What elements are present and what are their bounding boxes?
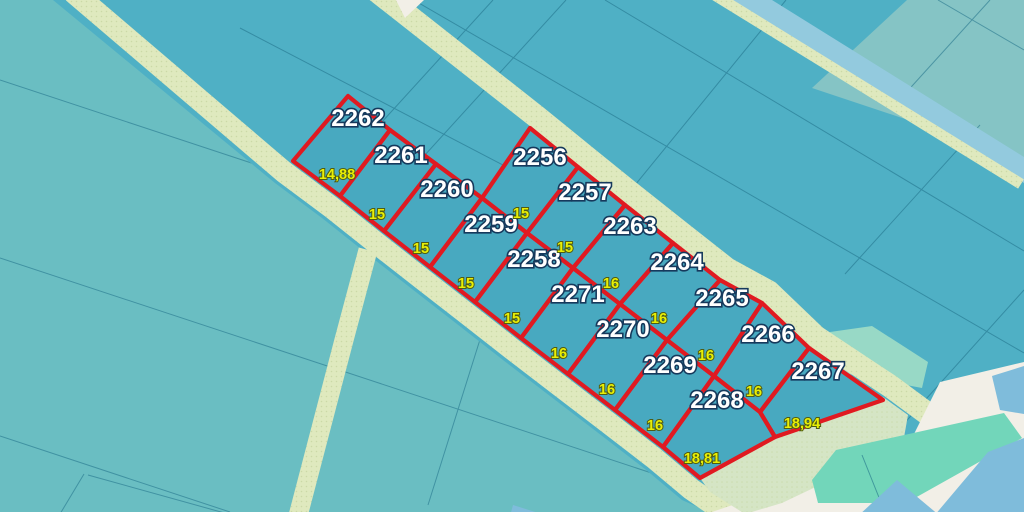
parcel-number-2261: 2261 [374,142,427,169]
frontage-measurement-2258: 15 [504,311,520,327]
frontage-measurement-2269: 16 [647,418,663,434]
frontage-measurement-2263: 16 [603,276,619,292]
frontage-measurement-2259: 15 [458,276,474,292]
frontage-measurement-2257: 15 [557,240,573,256]
parcel-number-2262: 2262 [331,105,384,132]
parcel-number-2264: 2264 [650,249,704,276]
parcel-number-2265: 2265 [695,285,748,312]
parcel-number-2257: 2257 [558,179,611,206]
parcel-number-2256: 2256 [513,144,566,171]
cadastral-map-svg: 226214,882261152260152259152258152271162… [0,0,1024,512]
frontage-measurement-2261: 15 [369,207,385,223]
frontage-measurement-2267: 18,94 [784,416,820,432]
frontage-measurement-2264: 16 [651,311,667,327]
parcel-number-2259: 2259 [464,211,517,238]
map-viewport[interactable]: 226214,882261152260152259152258152271162… [0,0,1024,512]
frontage-measurement-2268: 18,81 [684,451,720,467]
frontage-measurement-2262: 14,88 [319,167,355,183]
parcel-number-2258: 2258 [507,246,560,273]
parcel-number-2268: 2268 [690,387,743,414]
frontage-measurement-2256: 15 [513,206,529,222]
parcel-number-2263: 2263 [603,213,656,240]
frontage-measurement-2265: 16 [698,348,714,364]
parcel-number-2271: 2271 [551,281,604,308]
parcel-number-2267: 2267 [791,358,844,385]
parcel-number-2266: 2266 [741,321,794,348]
frontage-measurement-2271: 16 [551,346,567,362]
frontage-measurement-2266: 16 [746,384,762,400]
parcel-number-2260: 2260 [420,176,473,203]
frontage-measurement-2260: 15 [413,241,429,257]
parcel-number-2270: 2270 [596,316,649,343]
frontage-measurement-2270: 16 [599,382,615,398]
parcel-number-2269: 2269 [643,352,696,379]
